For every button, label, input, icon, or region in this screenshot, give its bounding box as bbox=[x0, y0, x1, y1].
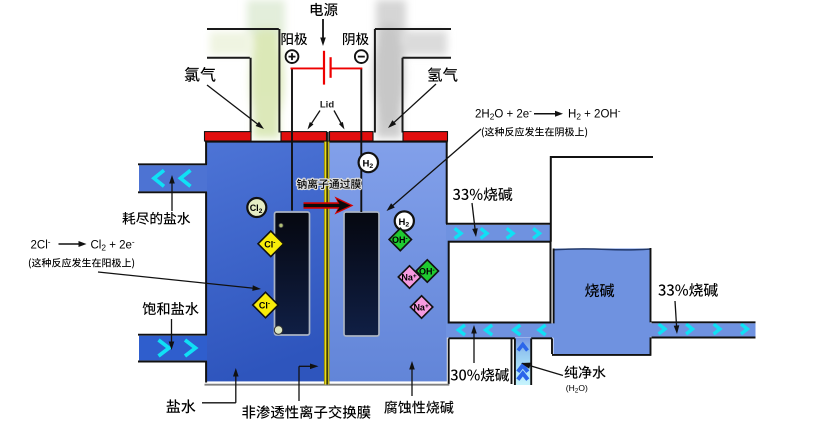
svg-text:OH-: OH- bbox=[419, 267, 435, 277]
svg-text:(H2O): (H2O) bbox=[566, 383, 588, 395]
svg-text:Lid: Lid bbox=[320, 100, 334, 111]
svg-text:2Cl-: 2Cl- bbox=[31, 237, 51, 252]
svg-text:OH-: OH- bbox=[392, 235, 408, 245]
svg-text:Cl2 + 2e-: Cl2 + 2e- bbox=[91, 237, 135, 253]
svg-text:2H2O + 2e-: 2H2O + 2e- bbox=[475, 106, 532, 122]
svg-text:H2 + 2OH-: H2 + 2OH- bbox=[568, 106, 621, 122]
